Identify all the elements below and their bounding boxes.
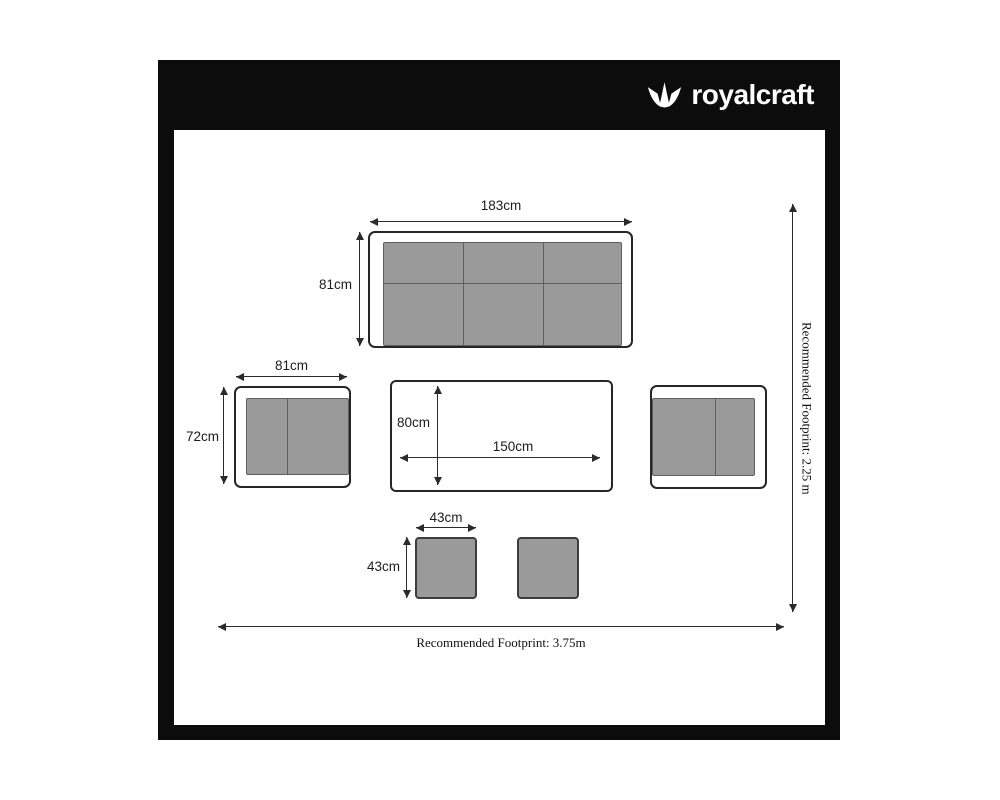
armchair-left-cushions xyxy=(246,398,349,475)
table-outline xyxy=(390,380,613,492)
crown-icon xyxy=(646,80,683,111)
armchair-right-cushions xyxy=(652,398,755,476)
brand-frame: royalcraft 183cm 81cm 81cm 72cm xyxy=(158,60,840,740)
footprint-depth-arrow xyxy=(792,204,793,612)
stool-left xyxy=(415,537,477,599)
armchair-width-label: 81cm xyxy=(236,359,347,373)
brand-logo: royalcraft xyxy=(646,76,814,114)
armchair-depth-label: 72cm xyxy=(174,430,219,444)
table-width-arrow xyxy=(400,457,600,458)
stool-width-label: 43cm xyxy=(416,511,476,525)
diagram-panel: 183cm 81cm 81cm 72cm 80cm 15 xyxy=(174,130,825,725)
stool-depth-arrow xyxy=(406,537,407,598)
armchair-right-cushion-divider xyxy=(715,399,716,475)
brand-name: royalcraft xyxy=(691,81,814,109)
footprint-depth-label: Recommended Footprint: 2.25 m xyxy=(798,204,816,612)
sofa-cushion-divider xyxy=(463,243,464,345)
sofa-cushions xyxy=(383,242,622,346)
sofa-width-label: 183cm xyxy=(370,199,632,213)
armchair-depth-arrow xyxy=(223,387,224,484)
footprint-width-label: Recommended Footprint: 3.75m xyxy=(218,636,784,649)
stool-depth-label: 43cm xyxy=(340,560,400,574)
sofa-depth-label: 81cm xyxy=(292,278,352,292)
sofa-width-arrow xyxy=(370,221,632,222)
product-dimension-image: royalcraft 183cm 81cm 81cm 72cm xyxy=(0,0,1000,800)
table-depth-label: 80cm xyxy=(370,416,430,430)
table-depth-arrow xyxy=(437,386,438,485)
sofa-cushion-divider xyxy=(543,243,544,345)
stool-width-arrow xyxy=(416,527,476,528)
sofa-seat-back-divider xyxy=(384,283,621,284)
stool-right xyxy=(517,537,579,599)
table-width-label: 150cm xyxy=(453,440,573,454)
armchair-width-arrow xyxy=(236,376,347,377)
armchair-left-cushion-divider xyxy=(287,399,288,474)
footprint-width-arrow xyxy=(218,626,784,627)
sofa-depth-arrow xyxy=(359,232,360,346)
